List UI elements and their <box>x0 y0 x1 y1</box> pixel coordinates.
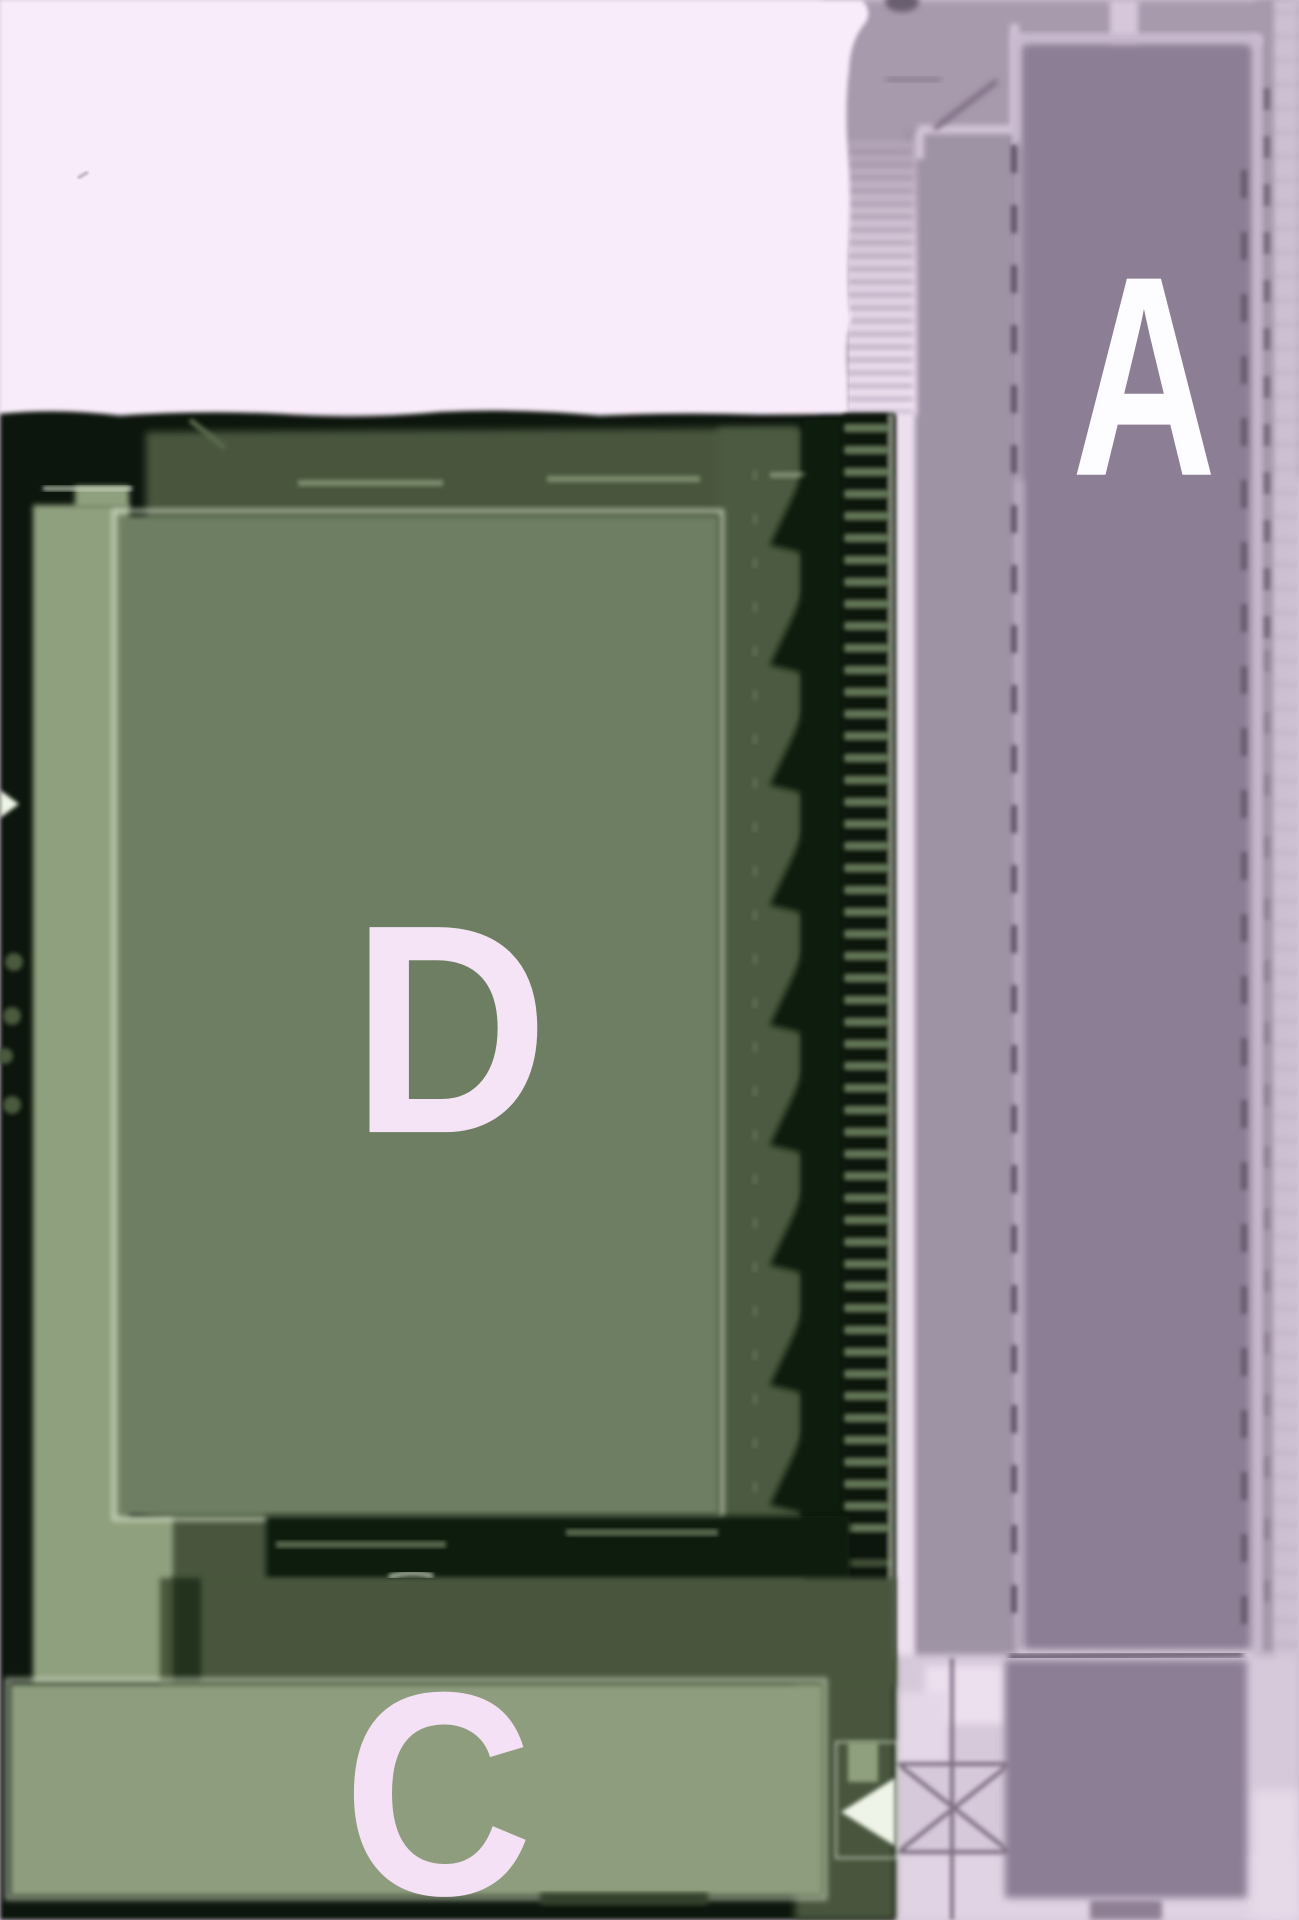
svg-text:C: C <box>343 1632 533 1920</box>
svg-text:D: D <box>351 862 549 1195</box>
svg-text:A: A <box>1072 218 1217 536</box>
